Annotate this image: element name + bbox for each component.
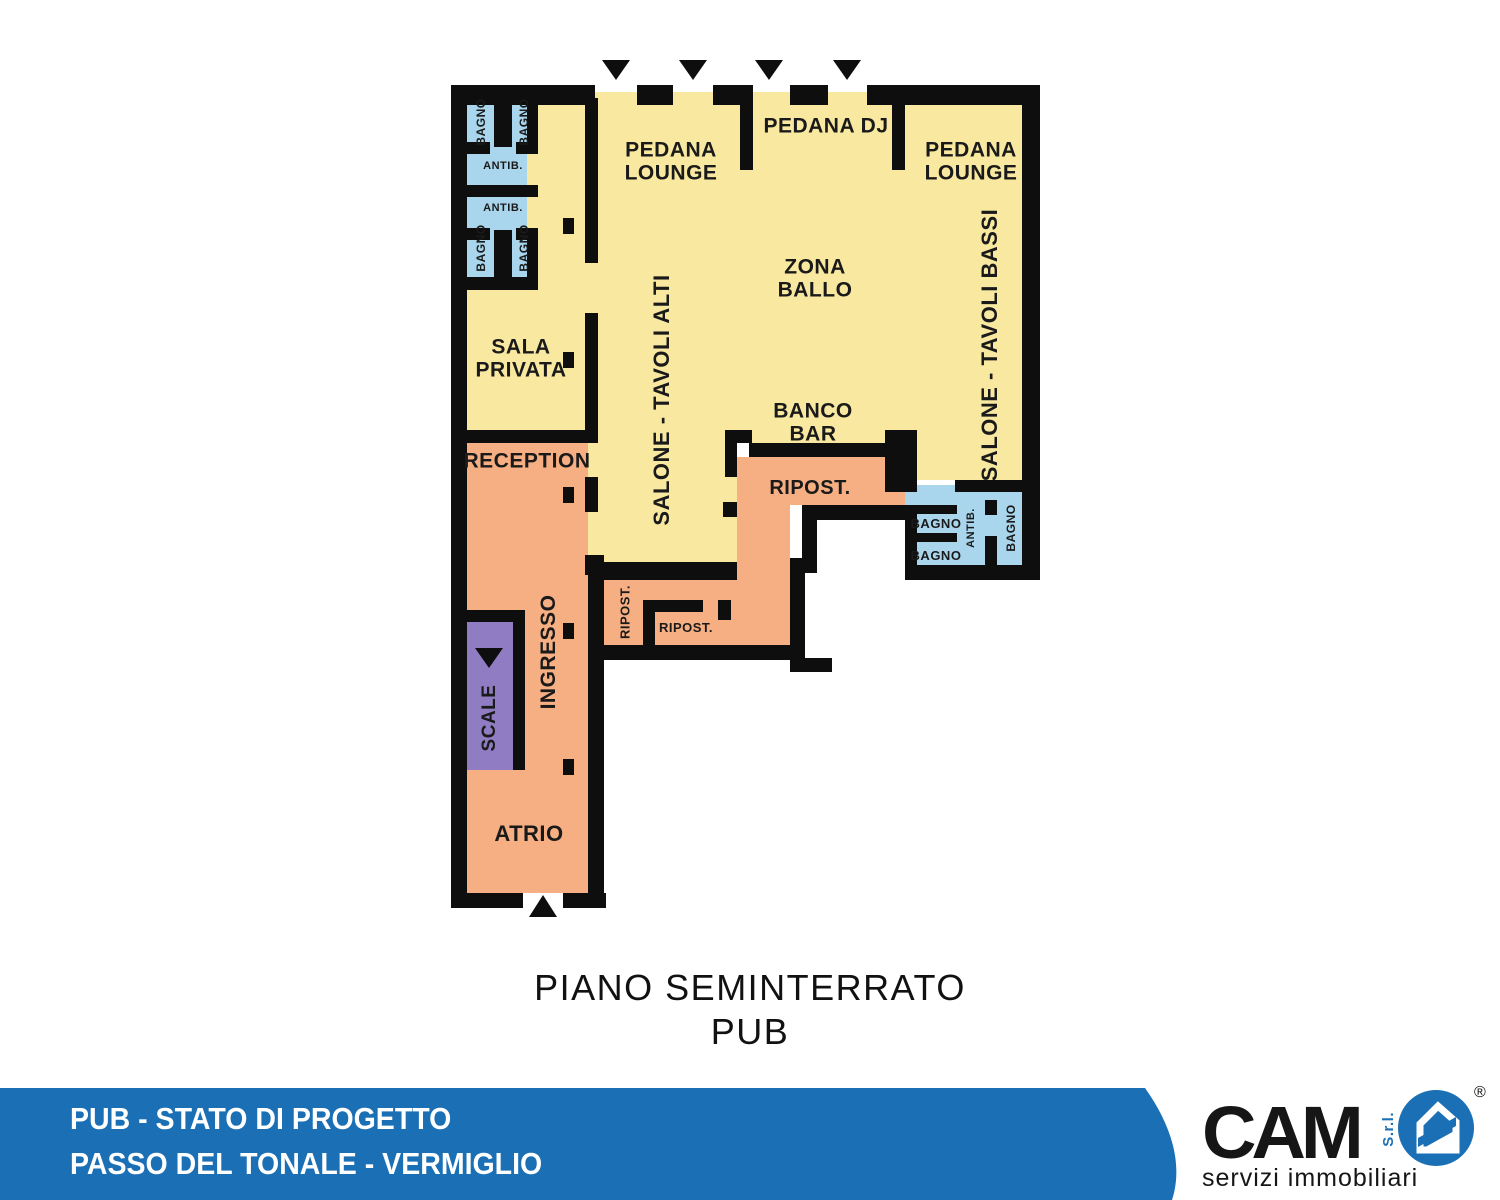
label-pedana-lounge-right: PEDANA LOUNGE [906, 139, 1036, 184]
wall-stub [723, 502, 737, 517]
wall-corridor-seg [585, 98, 598, 263]
label-banco-bar: BANCO BAR [763, 400, 863, 445]
logo-brand-text: CAM [1202, 1090, 1359, 1175]
wall-bagno-se-div [905, 533, 957, 542]
wall-bagno-se-top [955, 480, 1022, 492]
wall-top-seg [637, 85, 673, 105]
title-line2: PUB [0, 1010, 1500, 1054]
wall-bar-counter [737, 430, 752, 443]
wall-bagno-nw-middivider [467, 185, 538, 197]
wall-ripost-room-stub [718, 600, 731, 620]
footer-bar: PUB - STATO DI PROGETTO PASSO DEL TONALE… [0, 1088, 1500, 1200]
wall-entrance-right [588, 555, 604, 908]
label-pedana-lounge-left: PEDANA LOUNGE [606, 139, 736, 184]
entrance-arrow-icon [679, 60, 707, 80]
label-ripost-corridor: RIPOST. [618, 585, 633, 639]
logo-srl-text: S.r.l. [1380, 1112, 1397, 1147]
wall-step [790, 560, 817, 573]
wall-bagno-nw-bottom [467, 277, 538, 290]
wall-bagno-se-vert [985, 536, 997, 565]
floorplan-page: PEDANA LOUNGE PEDANA DJ PEDANA LOUNGE ZO… [0, 0, 1500, 1200]
label-reception: RECEPTION [447, 451, 607, 474]
wall-outer-left [451, 85, 467, 908]
label-bagno: BAGNO [517, 98, 531, 145]
entrance-arrow-icon [529, 895, 557, 917]
label-atrio: ATRIO [479, 822, 579, 846]
logo-tagline: servizi immobiliari [1202, 1164, 1418, 1193]
room-ripost-column [737, 505, 790, 645]
footer-project-text: PUB - STATO DI PROGETTO PASSO DEL TONALE… [70, 1096, 542, 1186]
wall-corridor-seg [585, 313, 598, 432]
label-sala-privata: SALA PRIVATA [466, 336, 576, 381]
wall-ripost-room [643, 600, 703, 612]
wall-bagno-se-stub [985, 500, 997, 515]
label-ripost-small: RIPOST. [646, 621, 726, 635]
wall-bagno-se-div [917, 505, 957, 514]
label-bagno: BAGNO [474, 98, 488, 145]
logo-house-badge [1398, 1090, 1474, 1166]
door-jamb [563, 487, 574, 503]
stairs-arrow-icon [475, 648, 503, 668]
wall-step [790, 658, 832, 672]
label-bagno: BAGNO [474, 224, 488, 271]
label-salone-tavoli-alti: SALONE - TAVOLI ALTI [649, 274, 675, 525]
wall-bagno-nw-stub [494, 92, 512, 147]
label-pedana-dj: PEDANA DJ [716, 116, 936, 139]
wall-corridor-seg [585, 555, 598, 575]
wall-corridor-seg [585, 477, 598, 512]
label-ripost-large: RIPOST. [750, 478, 870, 500]
label-ingresso: INGRESSO [537, 595, 561, 710]
company-logo: CAM S.r.l. ® servizi immobiliari [1130, 1088, 1500, 1200]
wall-sala-reception-divider [467, 430, 598, 443]
wall-se-bottom [905, 565, 1040, 580]
label-zona-ballo: ZONA BALLO [760, 256, 870, 301]
door-jamb [563, 623, 574, 639]
wall-stairs-right [513, 610, 525, 770]
label-scale: SCALE [479, 685, 501, 752]
label-bagno: BAGNO [901, 517, 971, 531]
drawing-title: PIANO SEMINTERRATO PUB [0, 966, 1500, 1054]
label-antib: ANTIB. [965, 508, 977, 548]
wall-bar-block [885, 430, 917, 492]
footer-line2: PASSO DEL TONALE - VERMIGLIO [70, 1141, 542, 1186]
wall-bar-counter [725, 430, 737, 477]
registered-mark: ® [1474, 1084, 1486, 1102]
label-bagno: BAGNO [517, 224, 531, 271]
entrance-arrow-icon [602, 60, 630, 80]
entrance-arrow-icon [833, 60, 861, 80]
wall-strip-bottom [588, 645, 797, 660]
label-bagno: BAGNO [901, 549, 971, 563]
label-bagno: BAGNO [1004, 504, 1018, 551]
wall-top-seg [790, 85, 828, 105]
label-salone-tavoli-bassi: SALONE - TAVOLI BASSI [977, 209, 1003, 481]
title-line1: PIANO SEMINTERRATO [0, 966, 1500, 1010]
entrance-arrow-icon [755, 60, 783, 80]
label-antib: ANTIB. [473, 203, 533, 215]
footer-line1: PUB - STATO DI PROGETTO [70, 1096, 542, 1141]
house-icon [1398, 1090, 1474, 1166]
label-antib: ANTIB. [473, 161, 533, 173]
door-jamb [563, 218, 574, 234]
wall-step [790, 558, 805, 660]
room-salone-bassi-bottom [917, 443, 1022, 480]
wall-atrio-bottom [451, 893, 523, 908]
wall-salone-bottom [588, 562, 737, 580]
wall-ripost-bottom [802, 505, 917, 520]
door-jamb [563, 759, 574, 775]
